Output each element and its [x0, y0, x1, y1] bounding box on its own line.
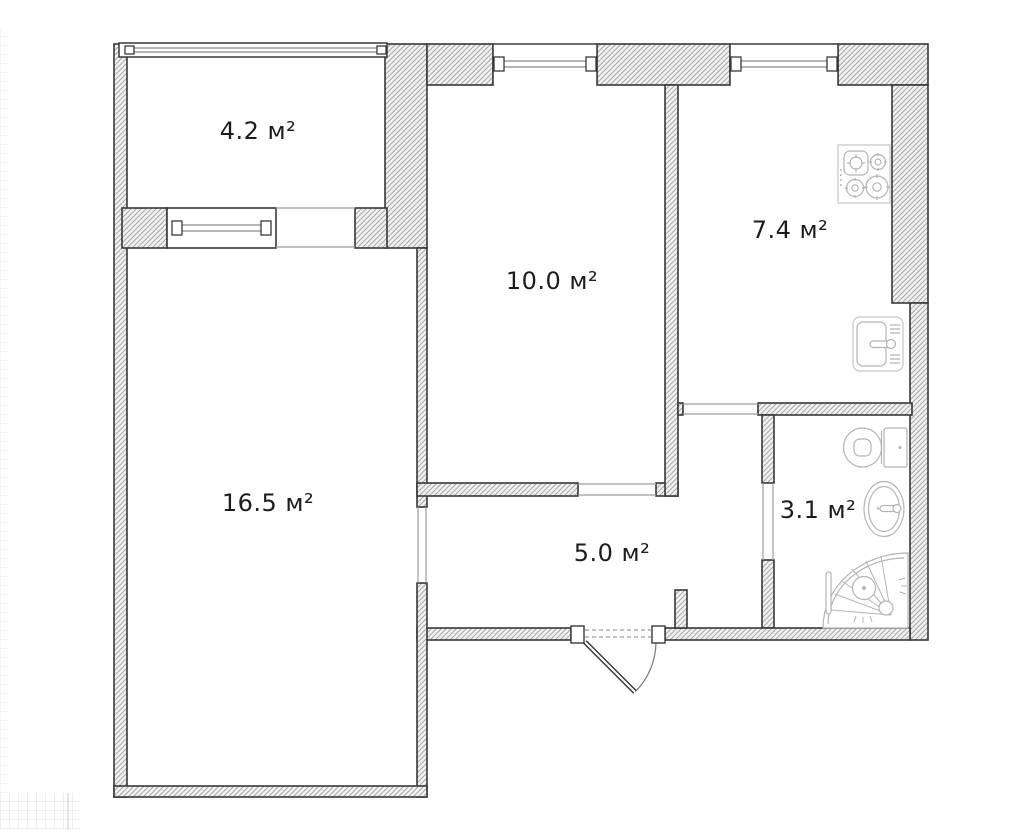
room-label-hallway: 5.0 м² — [574, 539, 651, 567]
room-label-kitchen: 7.4 м² — [752, 216, 829, 244]
wall-openings — [276, 208, 773, 583]
floor-plan-drawing — [0, 0, 1024, 839]
bedroom-window — [493, 44, 597, 85]
room-label-living-room: 16.5 м² — [222, 489, 314, 517]
gas-stove-icon — [838, 145, 890, 203]
room-label-bathroom: 3.1 м² — [780, 496, 857, 524]
balcony-inner-window — [167, 208, 276, 248]
kitchen-passage — [683, 404, 758, 414]
kitchen-window — [730, 44, 838, 85]
bedroom-doorway — [578, 484, 656, 495]
floor-plan-canvas: 4.2 м² 10.0 м² 7.4 м² 16.5 м² 5.0 м² 3.1… — [0, 0, 1024, 839]
toilet-icon — [844, 428, 908, 467]
room-label-bedroom: 10.0 м² — [506, 267, 598, 295]
shower-icon — [823, 553, 908, 628]
kitchen-sink-icon — [853, 317, 903, 371]
entrance-door-icon — [571, 626, 665, 692]
balcony-passage — [276, 208, 355, 247]
bathroom-doorway — [763, 483, 773, 560]
balcony-window — [119, 43, 387, 57]
living-room-doorway — [418, 507, 426, 583]
room-label-balcony: 4.2 м² — [220, 117, 297, 145]
graph-paper-texture — [0, 30, 80, 830]
washbasin-icon — [864, 482, 904, 537]
walls — [114, 44, 928, 797]
